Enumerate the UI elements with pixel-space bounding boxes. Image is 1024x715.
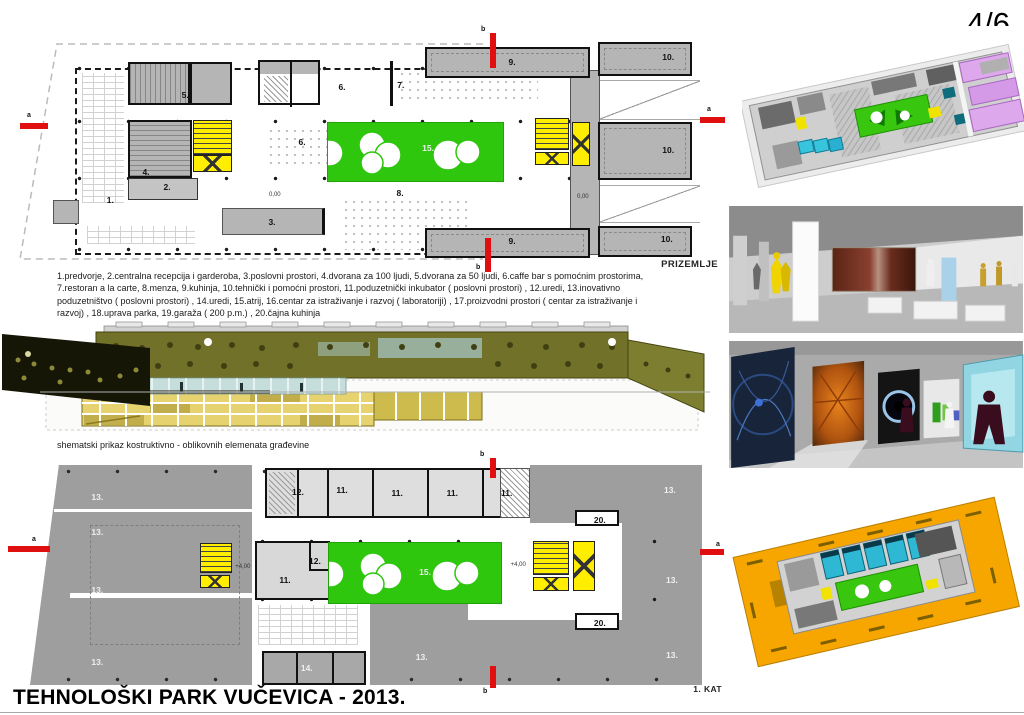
render-axon-ground xyxy=(742,26,1024,196)
first-floor-plan: a a b b 13.13.13.13.13.13.13.13.14.12.11… xyxy=(30,455,710,690)
room-label: 13. xyxy=(91,657,103,667)
room-label: 11. xyxy=(447,488,458,498)
room-label: 9. xyxy=(509,57,516,67)
room-label: 13. xyxy=(416,652,428,662)
section-marker-letter: a xyxy=(716,541,720,548)
room-label: 10. xyxy=(662,52,674,62)
room-label: 1. xyxy=(107,195,114,205)
room-label: 0,00 xyxy=(577,194,589,200)
ground-floor-name: PRIZEMLJE xyxy=(640,259,718,270)
room-label: 10. xyxy=(661,234,673,244)
room-label: +4,00 xyxy=(511,562,526,568)
building-section xyxy=(0,320,712,434)
room-label: 13. xyxy=(666,650,678,660)
bottom-rule xyxy=(0,712,1024,713)
ground-floor-plan: a a b b 1.2.3.4.5.6.6.7.8.9.9.10.10.10.1… xyxy=(20,28,720,275)
room-label: 15. xyxy=(422,143,434,153)
axon-ground-image xyxy=(742,26,1024,196)
room-label: 0,00 xyxy=(269,192,281,198)
section-drawing xyxy=(0,320,712,434)
room-label: 13. xyxy=(664,485,676,495)
legend-line: razvoj) , 18.uprava parka, 19.garaža ( 2… xyxy=(57,307,657,319)
room-label: 20. xyxy=(594,515,606,525)
room-label: 12. xyxy=(309,556,321,566)
room-label: 8. xyxy=(397,188,404,198)
room-label: 13. xyxy=(666,575,678,585)
first-floor-name: 1. KAT xyxy=(676,684,722,694)
room-label: 11. xyxy=(279,575,290,585)
room-label: 10. xyxy=(662,145,674,155)
room-label: 3. xyxy=(268,217,275,227)
legend-line: 7.restoran a la carte, 8.menza, 9.kuhinj… xyxy=(57,282,657,294)
room-label: 7. xyxy=(397,80,404,90)
room-label: 11. xyxy=(392,488,403,498)
render-interior-gallery xyxy=(728,341,1024,468)
room-label: 15. xyxy=(419,567,431,577)
legend-line: 1.predvorje, 2.centralna recepcija i gar… xyxy=(57,270,657,282)
interior-gallery-image xyxy=(728,341,1024,468)
render-interior-hall xyxy=(728,206,1024,333)
room-label: 20. xyxy=(594,618,606,628)
room-label: 13. xyxy=(91,492,103,502)
room-label: 2. xyxy=(163,182,170,192)
first-floor-labels: 13.13.13.13.13.13.13.13.14.12.11.11.11.1… xyxy=(30,455,710,690)
room-label: 12. xyxy=(292,487,304,497)
room-legend: 1.predvorje, 2.centralna recepcija i gar… xyxy=(57,270,657,320)
room-label: 13. xyxy=(91,585,103,595)
room-label: 5. xyxy=(182,90,189,100)
room-label: 13. xyxy=(91,527,103,537)
room-label: 11. xyxy=(336,485,347,495)
interior-hall-image xyxy=(728,206,1024,333)
room-label: 6. xyxy=(338,82,345,92)
project-title: TEHNOLOŠKI PARK VUČEVICA - 2013. xyxy=(13,686,406,710)
room-label: 4. xyxy=(142,167,149,177)
section-caption: shematski prikaz kostruktivno - oblikovn… xyxy=(57,440,309,450)
legend-line: poduzetništvo ( poslovni prostori) , 14.… xyxy=(57,295,657,307)
presentation-board: 4/6 xyxy=(0,0,1024,715)
room-label: 14. xyxy=(301,663,313,673)
room-label: 9. xyxy=(509,236,516,246)
ground-floor-labels: 1.2.3.4.5.6.6.7.8.9.9.10.10.10.15.0,000,… xyxy=(20,28,720,275)
room-label: 6. xyxy=(299,137,306,147)
room-label: 11. xyxy=(501,488,512,498)
render-axon-first xyxy=(728,474,1024,688)
axon-first-image xyxy=(728,474,1024,688)
room-label: +4,00 xyxy=(235,564,250,570)
